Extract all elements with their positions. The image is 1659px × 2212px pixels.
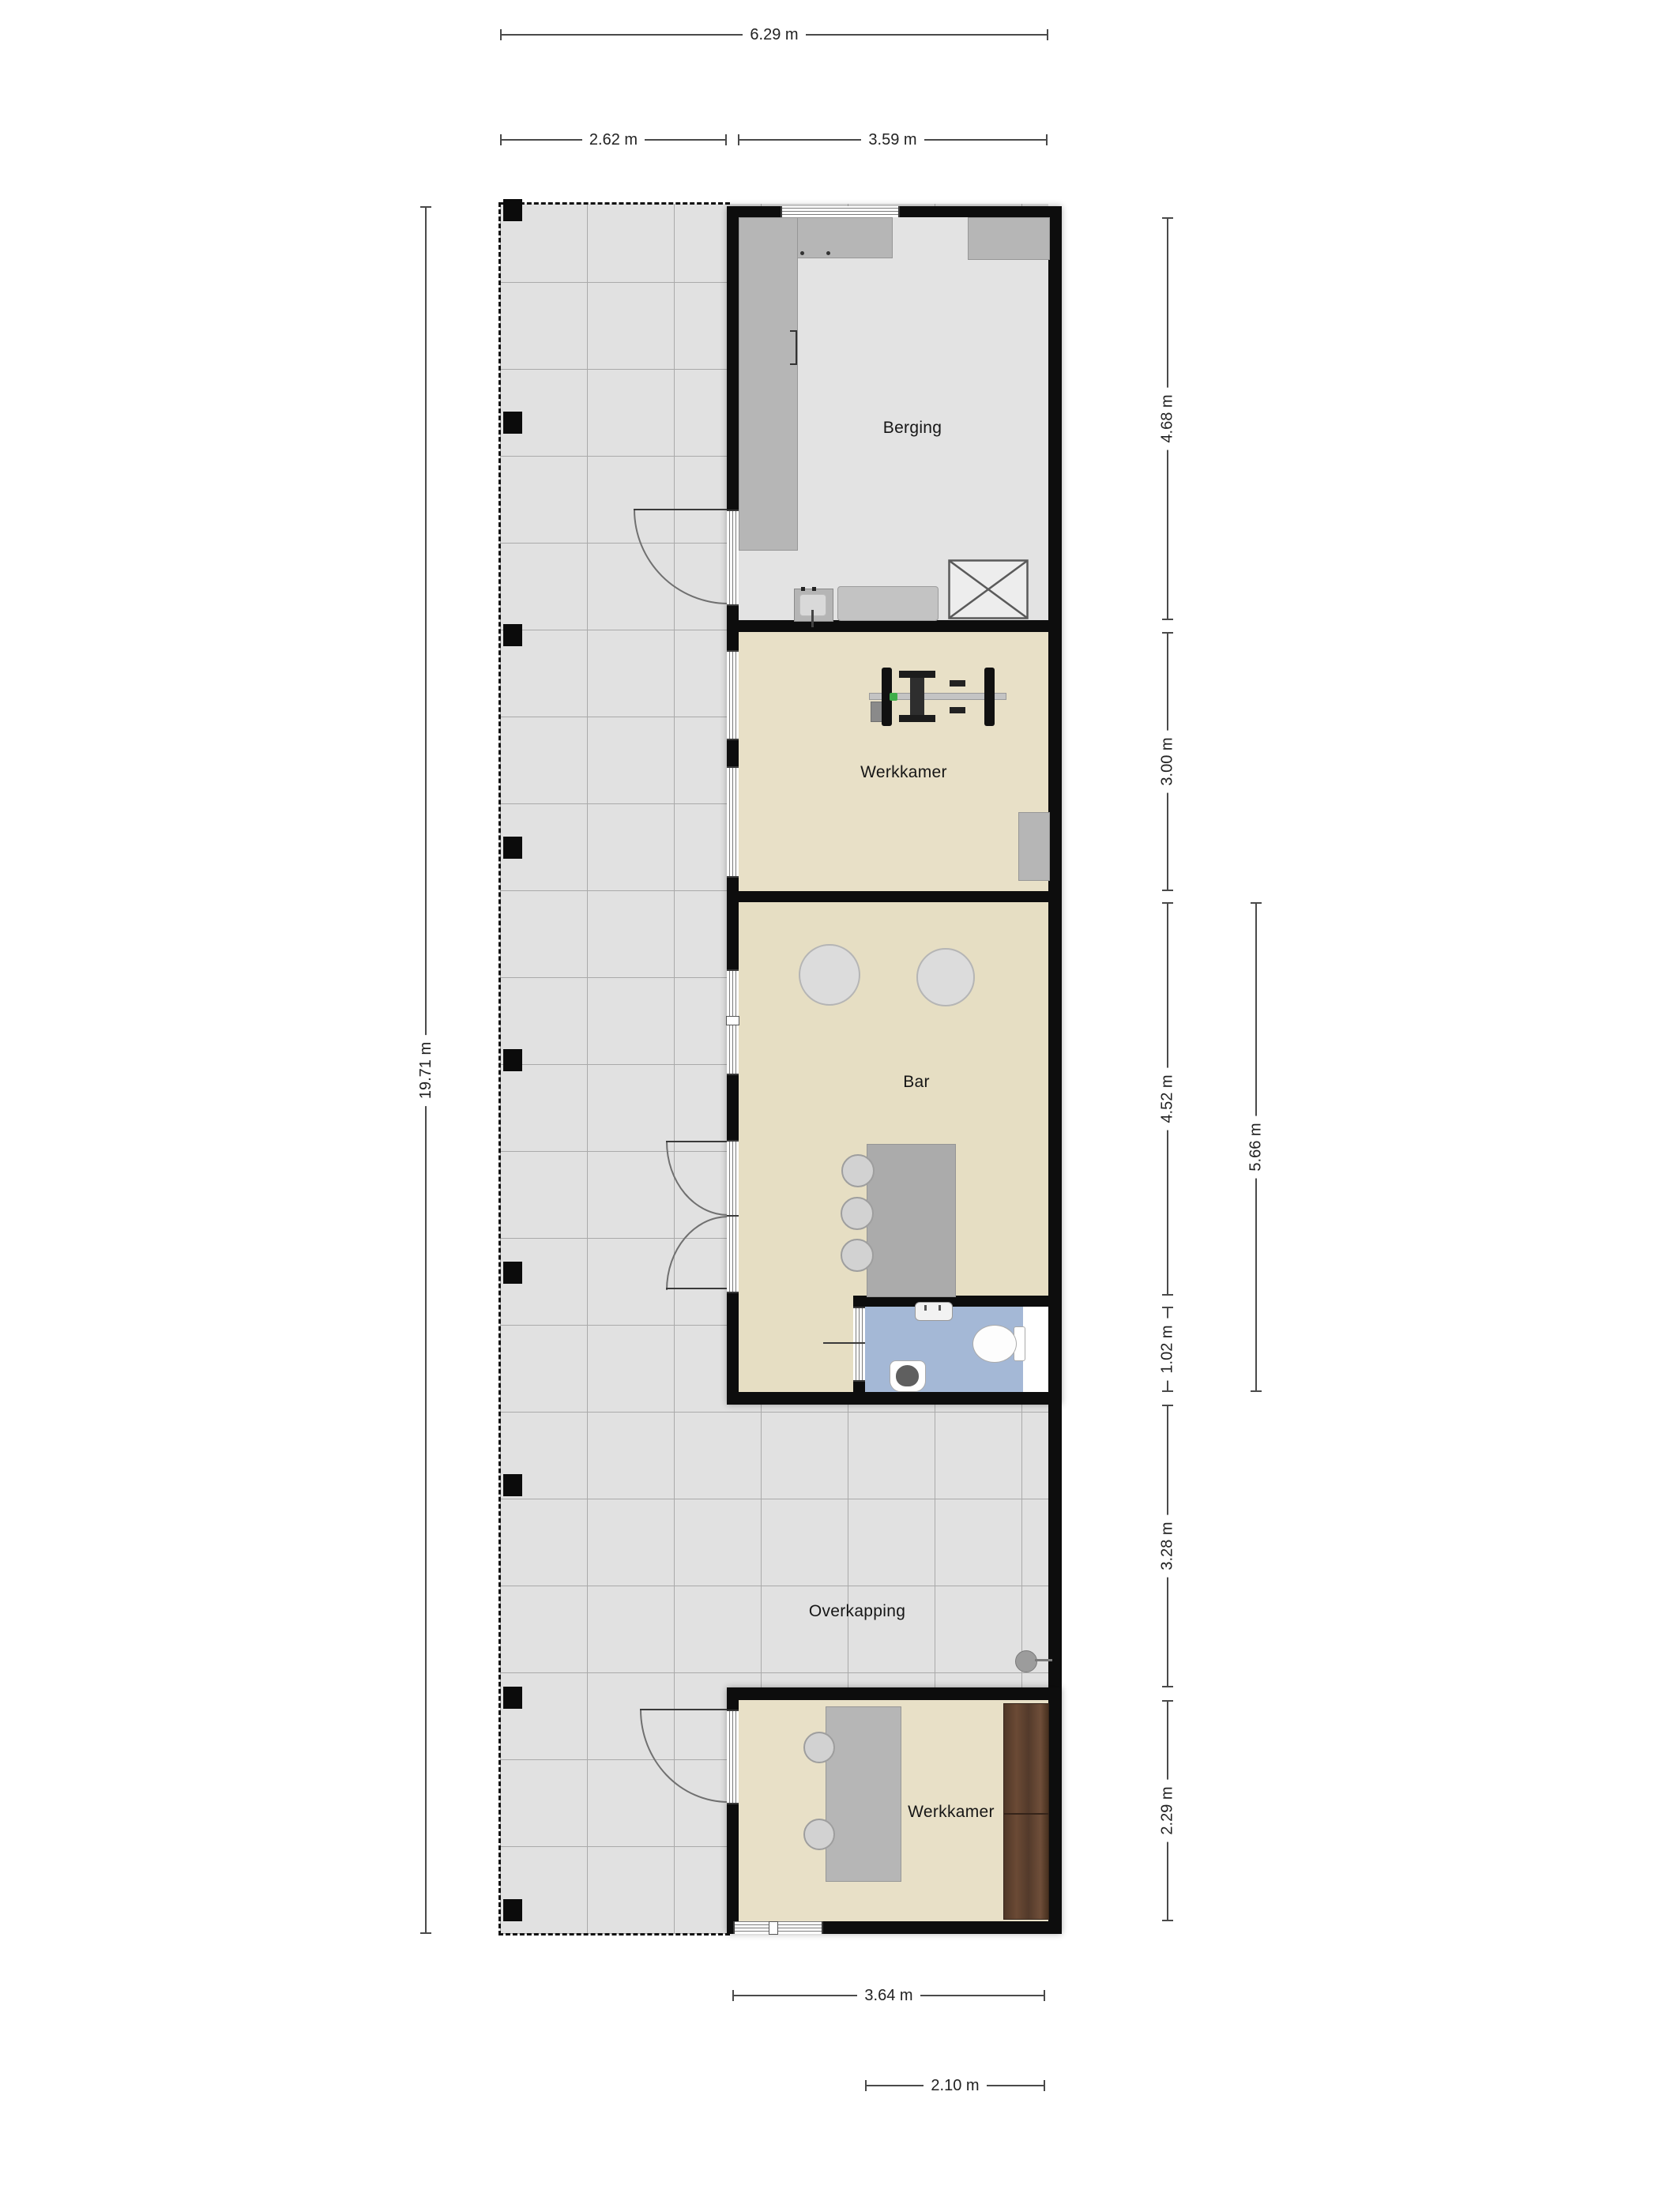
office-chair [803, 1732, 835, 1763]
appliance-knob-icon [812, 587, 816, 591]
werkkamer-bottom-door-icon [727, 1710, 739, 1804]
berging-cabinet-right [968, 217, 1050, 260]
gym-weight-plate [950, 680, 965, 687]
gym-green-accent [890, 693, 897, 701]
dimension-label: 3.64 m [857, 1987, 920, 2004]
dimension-label: 2.29 m [1159, 1779, 1176, 1841]
dimension-left-total: 19.71 m [416, 206, 435, 1934]
dimension-label: 3.28 m [1159, 1514, 1176, 1577]
terrace-dashed-boundary [498, 202, 730, 1935]
terrace-post [503, 624, 522, 646]
bar-door-upper-leaf [666, 1141, 727, 1142]
dimension-bottom-inner: 3.64 m [732, 1988, 1045, 2003]
appliance-knob-icon [801, 587, 805, 591]
dimension-right-overkapping: 3.28 m [1158, 1405, 1177, 1687]
werkkamer-bottom-window-divider [769, 1921, 778, 1935]
cabinet-handle-icon [790, 330, 797, 365]
bar-stool [841, 1239, 874, 1272]
bar-door-lower-icon [727, 1215, 739, 1293]
outdoor-tap-stem [1035, 1659, 1052, 1661]
bar-floor-strip [739, 1296, 853, 1392]
toilet-door-icon [853, 1307, 865, 1382]
dimension-label: 19.71 m [417, 1034, 434, 1105]
dimension-right-werkkamer: 3.00 m [1158, 632, 1177, 891]
werkkamer-desk [1018, 812, 1050, 881]
bar-door-lower-leaf [666, 1288, 727, 1289]
dimension-label: 6.29 m [743, 26, 805, 43]
room-label-werkkamer-top: Werkkamer [860, 763, 947, 782]
dimension-label: 1.02 m [1159, 1318, 1176, 1380]
werkkamer-window-icon [727, 650, 739, 740]
dimension-label: 2.62 m [582, 131, 645, 149]
dimension-right-berging: 4.68 m [1158, 217, 1177, 620]
dimension-label: 4.52 m [1159, 1067, 1176, 1130]
gym-bench-top [899, 671, 935, 678]
werkkamer-top-floor [739, 632, 1048, 891]
berging-door-icon [727, 510, 739, 606]
terrace-post [503, 412, 522, 434]
overkapping-right-wall [1048, 1405, 1062, 1687]
wardrobe-lower [1003, 1814, 1049, 1920]
room-label-overkapping: Overkapping [809, 1602, 905, 1621]
gym-bench-seat [910, 675, 924, 717]
wardrobe-upper [1003, 1703, 1049, 1814]
appliance-pipe [811, 610, 814, 627]
radiator-tick-icon [924, 1305, 927, 1311]
counter-knob-icon [800, 251, 804, 255]
round-table [799, 944, 860, 1006]
werkkamer-window-icon [727, 766, 739, 878]
dimension-label: 4.68 m [1159, 387, 1176, 450]
dimension-right-toilet: 1.02 m [1158, 1307, 1177, 1392]
round-table [916, 948, 975, 1006]
gym-rack-post [984, 668, 995, 726]
dimension-bottom-offset: 2.10 m [865, 2078, 1045, 2093]
room-label-bar: Bar [903, 1073, 930, 1092]
terrace-post [503, 1474, 522, 1496]
workbench [837, 586, 939, 621]
bar-stool [841, 1197, 874, 1230]
terrace-post [503, 1049, 522, 1071]
terrace-post [503, 199, 522, 221]
dimension-right-bar: 4.52 m [1158, 902, 1177, 1296]
room-label-werkkamer-bottom: Werkkamer [908, 1803, 995, 1822]
toilet-door-swing-line [823, 1342, 865, 1344]
terrace-post [503, 1262, 522, 1284]
dimension-right-werkkamer2: 2.29 m [1158, 1700, 1177, 1921]
gym-weight-plate [950, 707, 965, 713]
dimension-top-right: 3.59 m [738, 132, 1048, 148]
dimension-label: 3.00 m [1159, 730, 1176, 792]
dimension-label: 2.10 m [924, 2077, 986, 2094]
berging-window-icon [781, 206, 900, 217]
terrace-post [503, 1899, 522, 1921]
dimension-top-total: 6.29 m [500, 27, 1048, 43]
sink-bowl [896, 1365, 919, 1386]
crossed-box-icon [948, 559, 1029, 619]
bar-stool [841, 1154, 875, 1187]
dimension-label: 5.66 m [1247, 1115, 1265, 1178]
werkkamer-bottom-door-leaf [640, 1709, 727, 1710]
bar-counter [867, 1144, 956, 1297]
outdoor-tap-icon [1015, 1650, 1037, 1672]
terrace-post [503, 1687, 522, 1709]
gym-bench-bottom [899, 715, 935, 722]
counter-knob-icon [826, 251, 830, 255]
dimension-label: 3.59 m [861, 131, 924, 149]
radiator [915, 1302, 953, 1321]
toilet-bowl [972, 1325, 1017, 1363]
dimension-top-left: 2.62 m [500, 132, 727, 148]
werkkamer-bottom-window-icon [733, 1921, 823, 1934]
bar-door-upper-icon [727, 1140, 739, 1218]
terrace-post [503, 837, 522, 859]
dimension-right-bar-total: 5.66 m [1247, 902, 1266, 1392]
room-label-berging: Berging [883, 419, 942, 438]
berging-cabinet-left [739, 217, 798, 551]
office-chair [803, 1819, 835, 1850]
berging-door-leaf [634, 509, 727, 510]
floorplan-canvas: Berging Werkkamer Bar Overkapping Werkka… [0, 0, 1659, 2212]
werkkamer-bottom-desk [826, 1706, 901, 1882]
toilet-door-recess [1023, 1307, 1048, 1392]
bar-window-divider [726, 1016, 739, 1025]
radiator-tick-icon [939, 1305, 941, 1311]
